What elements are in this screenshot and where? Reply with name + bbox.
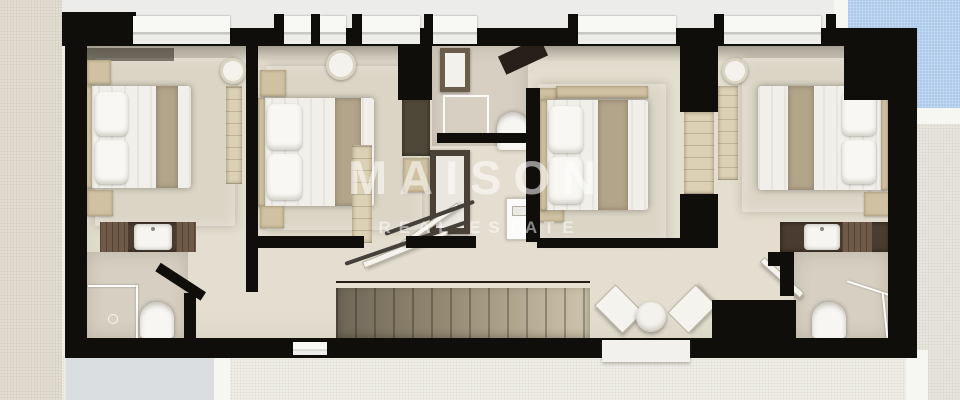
bed-1-runner [156,86,178,188]
round-pouf [636,302,666,332]
round-mirror [326,50,356,80]
bed-2-pillow-b [267,154,302,200]
cabinet-tall [402,98,430,156]
floor-plan-render: MAISON REAL ESTATE [0,0,960,400]
bed-4-pillow-b [842,140,876,184]
toilet [812,302,846,338]
shower-glass [136,285,138,338]
round-mirror [220,58,246,84]
wall-bath2-bottom [437,133,537,143]
window [724,16,821,44]
wall-pilaster [714,14,724,30]
nightstand [260,70,286,96]
wardrobe-recess [684,112,714,194]
wall-bedroom3-bedroom4-upper [680,46,718,112]
stucco-wall [0,0,62,400]
vanity-1-tiles [176,222,196,252]
wall-bath3-left [780,252,794,296]
window [133,16,230,44]
wall-pilaster [826,14,836,30]
wall-bedroom3-bedroom4-lower [680,194,718,248]
entry-step [602,340,690,362]
watermark-brand: MAISON [348,150,608,205]
bed-1-pillow-a [95,92,128,136]
bed-2-headboard [258,98,265,206]
vanity-4-sink [804,224,840,250]
shower-glass [88,285,138,287]
vanity-1-tiles [100,222,128,252]
shower-drain [108,314,118,324]
corner-block-top-left [62,12,136,46]
window [320,16,346,44]
window-bottom [293,342,327,355]
outer-wall-left [65,28,87,358]
wall-pilaster [352,14,362,30]
round-mirror [722,58,748,84]
terrace-gray-patch [66,358,214,400]
nightstand [864,192,890,216]
window [433,16,477,44]
mirror-cabinet-glass [445,53,465,87]
watermark-tagline: REAL ESTATE [378,218,581,238]
wall-bath3-hinge [768,252,780,266]
toilet [140,302,174,338]
bed-2-pillow-a [267,104,302,150]
glass-railing [336,281,590,288]
bed-3-pillow-a [549,106,583,153]
toilet [497,112,529,150]
bedroom-1-wardrobe [226,86,242,184]
wall-bedroom1-bedroom2 [246,46,258,232]
bedroom-4-wardrobe [718,86,738,180]
bed-4-headboard [881,86,888,190]
wall-pilaster [424,14,433,30]
bed-1-pillow-b [95,140,128,184]
window [578,16,676,44]
vanity-1-sink [134,224,172,250]
bed-4-runner [788,86,814,190]
nightstand [260,206,284,228]
terrace-white-strip [214,358,230,400]
wall-pilaster [568,14,578,30]
wall-corridor-c [537,238,685,248]
wall-hall-left [246,232,258,292]
nightstand [87,190,113,216]
wall-corridor-a [256,236,364,248]
vanity-4-tiles [842,222,872,252]
wall-pilaster [274,14,284,30]
corner-block-top-right [844,28,917,100]
window [362,16,420,44]
staircase [336,284,590,338]
wall-pilaster [311,14,320,30]
outer-wall-bottom [65,338,917,358]
wall-shelf [556,86,648,98]
wall-bath1-right [184,293,196,338]
nightstand [87,60,111,84]
window [284,16,311,44]
wall-entry-right-block [712,300,796,338]
